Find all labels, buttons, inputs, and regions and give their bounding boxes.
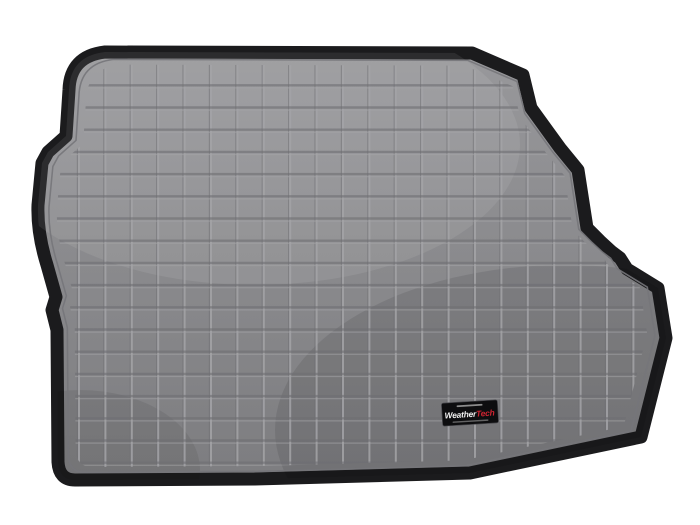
cargo-liner-illustration: WeatherTech <box>0 0 700 525</box>
badge-brand-weather: Weather <box>444 409 477 421</box>
badge-brand-tech: Tech <box>476 408 495 419</box>
product-photo-cargo-liner: WeatherTech <box>0 0 700 525</box>
weathertech-badge: WeatherTech <box>441 400 498 426</box>
